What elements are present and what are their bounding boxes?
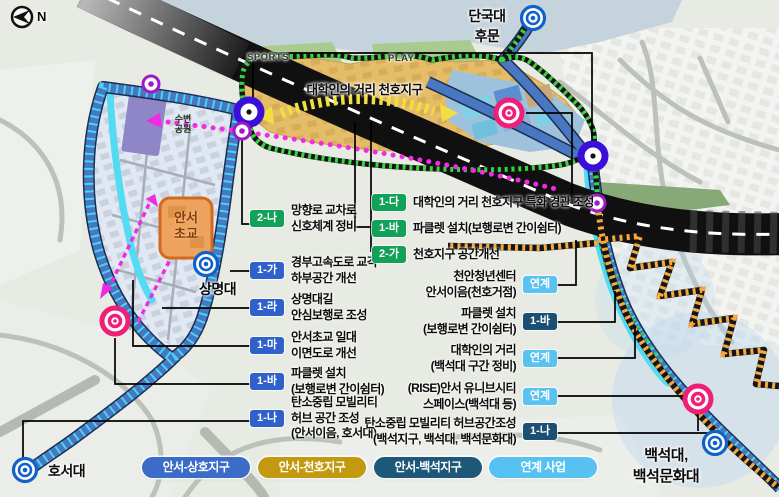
badge-link-street: 연계 — [523, 350, 557, 367]
badge-link-youthcenter: 연계 — [523, 276, 557, 293]
badge-1na-left: 1-나 — [250, 410, 284, 427]
sangmyung-label: 상명대 — [199, 279, 236, 299]
baekseok-pink-target-icon — [685, 386, 711, 412]
badge-1ma: 1-마 — [250, 337, 284, 354]
callout-left-1: 1-가 경부고속도로 교각하부공간 개선 — [250, 255, 377, 286]
callout-left-2: 1-라 상명대길안심보행로 조성 — [250, 292, 367, 323]
callout-right-1: 파클렛 설치(보행로변 간이쉼터) 1-바 — [423, 306, 557, 337]
legend-cheonho[interactable]: 안서-천호지구 — [258, 457, 366, 478]
badge-1ga: 1-가 — [250, 262, 284, 279]
dankook-target-icon — [522, 7, 545, 30]
callout-text: (RISE)안서 유니브시티스페이스(백석대 등) — [408, 381, 516, 412]
signal-icon-west — [237, 100, 261, 124]
callout-left-4: 1-바 파클렛 설치(보행로변 간이쉼터) — [250, 366, 384, 397]
callout-text: 파클렛 설치(보행로변 간이쉼터) — [423, 306, 516, 337]
callout-text: 대학인의 거리(백석대 구간 정비) — [431, 343, 516, 374]
callout-center-1: 1-바 파클렛 설치(보행로변 간이쉼터) — [372, 220, 561, 237]
badge-2ga: 2-가 — [372, 246, 406, 263]
callout-left-3: 1-마 안서초교 일대이면도로 개선 — [250, 330, 356, 361]
callout-left-5: 1-나 탄소중립 모빌리티허브 공간 조성(안서이음, 호서대) — [250, 395, 377, 442]
signal-icon-east — [581, 144, 605, 168]
play-area-label: PLAY — [388, 53, 414, 64]
callout-text: 파클렛 설치(보행로변 간이쉼터) — [413, 221, 561, 237]
legend-link[interactable]: 연계 사업 — [489, 457, 597, 478]
waterside-park-label: 수변공원 — [166, 114, 200, 134]
cheonho-pink-target-icon — [496, 100, 522, 126]
callout-right-4: 탄소중립 모빌리티 허브공간조성(백석지구, 백석대, 백석문화대) 1-나 — [364, 416, 557, 447]
callout-text: 천호지구 공간개선 — [413, 247, 499, 263]
callout-text: 경부고속도로 교각하부공간 개선 — [291, 255, 377, 286]
hoseo-target-icon — [14, 459, 37, 482]
callout-text: 망향로 교차로신호체계 정비 — [291, 203, 356, 234]
map-canvas: N SPORTS PLAY 대학인의 거리 천호지구 수변공원 안서초교 단국대… — [0, 0, 779, 497]
baekseok-label: 백석대,백석문화대 — [608, 444, 724, 486]
sports-area-label: SPORTS — [247, 52, 289, 63]
badge-1ra: 1-라 — [250, 299, 284, 316]
callout-text: 천안청년센터안서이음(천호거점) — [426, 269, 516, 300]
crosswalk-icon-2 — [234, 123, 250, 139]
sangmyung-target-icon — [195, 253, 218, 276]
badge-1ba-left: 1-바 — [250, 373, 284, 390]
callout-right-0: 천안청년센터안서이음(천호거점) 연계 — [426, 269, 557, 300]
badge-1da: 1-다 — [372, 194, 406, 211]
badge-1ba-center: 1-바 — [372, 220, 406, 237]
callout-center-2: 2-가 천호지구 공간개선 — [372, 246, 499, 263]
callout-text: 대학인의 거리 천호지구 특화 경관 조성 — [413, 195, 594, 211]
hoseo-label: 호서대 — [48, 461, 85, 481]
legend-baekseok[interactable]: 안서-백석지구 — [374, 457, 482, 478]
crosswalk-icon-1 — [143, 76, 159, 92]
callout-right-3: (RISE)안서 유니브시티스페이스(백석대 등) 연계 — [408, 381, 557, 412]
badge-1ba-right: 1-바 — [523, 313, 557, 330]
callout-text: 파클렛 설치(보행로변 간이쉼터) — [291, 366, 384, 397]
callout-text: 상명대길안심보행로 조성 — [291, 292, 367, 323]
north-label: N — [37, 9, 46, 24]
cheonho-street-title: 대학인의 거리 천호지구 — [282, 79, 447, 98]
badge-link-rise: 연계 — [523, 388, 557, 405]
dankook-label: 단국대후문 — [455, 6, 519, 46]
north-arrow-icon — [12, 7, 32, 27]
badge-1na-right: 1-나 — [523, 423, 557, 440]
badge-2na: 2-나 — [250, 210, 284, 227]
sangho-pink-target-icon — [102, 308, 128, 334]
callout-center-0: 1-다 대학인의 거리 천호지구 특화 경관 조성 — [372, 194, 594, 211]
anseo-school-label: 안서초교 — [160, 210, 212, 242]
callout-text: 안서초교 일대이면도로 개선 — [291, 330, 356, 361]
callout-left-0: 2-나 망향로 교차로신호체계 정비 — [250, 203, 356, 234]
callout-right-2: 대학인의 거리(백석대 구간 정비) 연계 — [431, 343, 557, 374]
callout-text: 탄소중립 모빌리티 허브공간조성(백석지구, 백석대, 백석문화대) — [364, 416, 516, 447]
legend-sangho[interactable]: 안서-상호지구 — [142, 457, 250, 478]
